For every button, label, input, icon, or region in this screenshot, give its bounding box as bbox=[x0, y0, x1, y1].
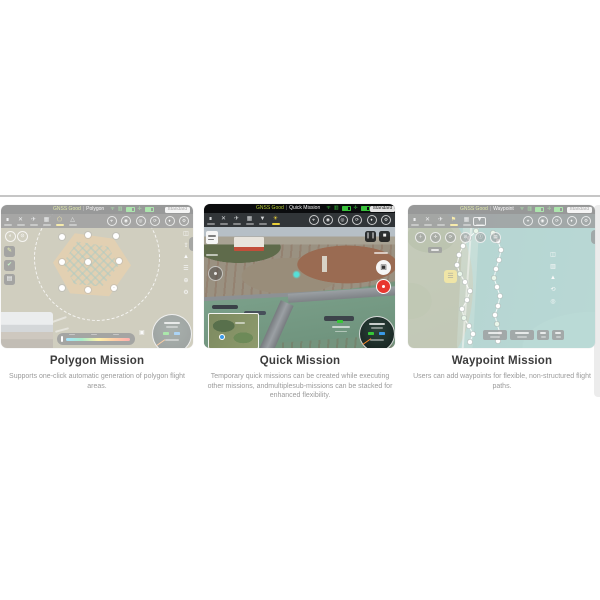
waypoint-marker bbox=[494, 321, 499, 326]
mission-name-text: Quick Mission bbox=[289, 204, 320, 213]
mic-icon: ♦ bbox=[367, 215, 377, 225]
target-icon: ⌖ bbox=[523, 216, 533, 226]
right-icon-strip: ◫ ▥ ▲ ⟲ ◎ bbox=[548, 251, 558, 305]
telemetry-compass bbox=[152, 314, 192, 348]
gnss-status-text: GNSS Good bbox=[53, 205, 81, 214]
add-waypoint-icon: ＋ bbox=[415, 232, 426, 243]
vertex-handle bbox=[113, 233, 119, 239]
app-status-bar: GNSS Good | Waypoint ᯤ ▥ ✛ Standard bbox=[408, 205, 595, 214]
waypoint-marker bbox=[497, 293, 502, 298]
app-status-bar: GNSS Good | Polygon ᯤ ▥ ✛ Standard bbox=[1, 205, 193, 214]
flight-mode-chip: Standard bbox=[370, 206, 395, 212]
status-icons: ᯤ ▥ ✛ bbox=[520, 205, 564, 214]
gnss-status-text: GNSS Good bbox=[460, 205, 488, 214]
waypoint-marker bbox=[467, 288, 472, 293]
folder-icon: ▤ bbox=[490, 232, 501, 243]
minimap-label bbox=[235, 322, 245, 324]
battery-percent-chip bbox=[337, 320, 343, 323]
route-tool-icon: ▼ bbox=[473, 217, 486, 226]
toolbar-right-icons: ⌖ ◉ ⟳ ♦ ⚙ bbox=[523, 216, 595, 226]
boat bbox=[212, 305, 238, 309]
stop-tool-icon: ✕ bbox=[421, 217, 434, 226]
page-canvas: - GNSS Good | Polygon ᯤ ▥ ✛ Standard ∎ ✕ bbox=[0, 0, 600, 600]
camera-icon: ◎ bbox=[136, 216, 146, 226]
minimap-drone-dot bbox=[219, 334, 225, 340]
mic-icon: ♦ bbox=[567, 216, 577, 226]
vertex-handle bbox=[85, 287, 91, 293]
waypoint-count-chip bbox=[537, 330, 549, 340]
delete-icon: ⊘ bbox=[460, 232, 471, 243]
carousel-card-polygon-mission[interactable]: - GNSS Good | Polygon ᯤ ▥ ✛ Standard ∎ ✕ bbox=[1, 205, 193, 348]
zoom-chip-text bbox=[208, 239, 214, 241]
mission-toolbar: ∎ ✕ ✈ ⚑ ▦ ▼ ⌖ ◉ ⟳ ♦ ⚙ bbox=[408, 214, 595, 228]
waypoint-marker bbox=[498, 247, 503, 252]
mission-toolbar: ∎ ✕ ✈ ▦ ⬠ △ ⌖ ◉ ◎ ⟳ ♦ ⚙ bbox=[1, 214, 193, 228]
flight-mode-chip: Standard bbox=[165, 207, 190, 213]
flight-mode-chip: Standard bbox=[567, 207, 592, 213]
battery2-icon bbox=[554, 207, 563, 213]
zoom-chip-text bbox=[208, 235, 216, 237]
waypoint-marker bbox=[470, 331, 475, 336]
polygon-tool-icon-active: ⬠ bbox=[53, 217, 66, 226]
terrain-tool-icon: △ bbox=[66, 217, 79, 226]
stop-tool-icon: ✕ bbox=[14, 217, 27, 226]
slider-tick-label bbox=[113, 334, 119, 335]
target-icon: ⌖ bbox=[107, 216, 117, 226]
heading-needle bbox=[363, 338, 372, 345]
toolbar-right-icons: ⌖ ◉ ◎ ⟳ ♦ ⚙ bbox=[309, 215, 396, 225]
hd-link-icon: ▥ bbox=[118, 205, 123, 214]
drone-tool-icon: ✈ bbox=[230, 216, 243, 225]
locate-arrow-icon: ▲ bbox=[550, 275, 556, 281]
telemetry-text bbox=[165, 339, 179, 341]
record-dot bbox=[382, 285, 385, 288]
tooltip-text bbox=[431, 249, 439, 251]
heading-needle bbox=[157, 339, 166, 346]
slider-tick-label bbox=[91, 334, 97, 335]
altitude-slider bbox=[57, 333, 135, 345]
drawer-handle bbox=[189, 237, 193, 251]
map-3d-icon: ▥ bbox=[550, 263, 556, 270]
photo-shutter-button: ▣ bbox=[376, 260, 391, 275]
waypoint-marker bbox=[495, 303, 500, 308]
gnss-satellite-icon: ✛ bbox=[547, 205, 551, 214]
separator: | bbox=[286, 204, 287, 213]
waypoint-marker bbox=[466, 323, 471, 328]
waypoint-marker bbox=[464, 297, 469, 302]
battery-icon bbox=[535, 207, 544, 213]
target-icon: ⌖ bbox=[309, 215, 319, 225]
carousel-card-quick-mission[interactable]: GNSS Good | Quick Mission ᯤ ▥ ✛ Standard… bbox=[204, 204, 395, 348]
settings-icon: ⚙ bbox=[381, 215, 391, 225]
polygon-mission-title: Polygon Mission bbox=[0, 355, 195, 367]
stop-mission-button: ■ bbox=[379, 231, 390, 242]
camera-params-text bbox=[374, 252, 388, 254]
edit-button: ✎ bbox=[4, 246, 15, 257]
frame-icon: ◫ bbox=[183, 230, 189, 237]
map-layer-button: ☰ bbox=[444, 270, 457, 283]
sync-icon: ⟳ bbox=[552, 216, 562, 226]
toolbar-right-icons: ⌖ ◉ ◎ ⟳ ♦ ⚙ bbox=[107, 216, 194, 226]
gnss-satellite-icon: ✛ bbox=[138, 205, 142, 214]
waypoint-marker bbox=[461, 315, 466, 320]
polygon-mission-description: Supports one-click automatic generation … bbox=[0, 372, 195, 391]
camera-icon: ◎ bbox=[338, 215, 348, 225]
quick-mission-icon-active: ☀ bbox=[269, 216, 282, 225]
rc-signal-icon: ᯤ bbox=[110, 205, 115, 214]
locate-button: ⊙ bbox=[17, 231, 28, 242]
zoom-in-icon: ⊕ bbox=[183, 277, 188, 284]
waypoint-marker bbox=[462, 279, 467, 284]
waypoint-marker bbox=[493, 266, 498, 271]
quick-mission-description: Temporary quick missions can be created … bbox=[202, 372, 398, 401]
pause-tool-icon: ∎ bbox=[408, 217, 421, 226]
stop-tool-icon: ✕ bbox=[217, 216, 230, 225]
waypoint-marker bbox=[456, 252, 461, 257]
app-status-bar: GNSS Good | Quick Mission ᯤ ▥ ✛ Standard bbox=[204, 204, 395, 213]
record-button bbox=[376, 279, 391, 294]
grid-tool-icon: ▦ bbox=[40, 217, 53, 226]
refresh-icon: ⟲ bbox=[550, 286, 555, 293]
camera-feed-thumbnail bbox=[1, 312, 53, 348]
telemetry-text bbox=[332, 326, 350, 328]
gimbal-dot bbox=[214, 272, 217, 275]
waypoint-marker bbox=[467, 339, 472, 344]
gnss-status-text: GNSS Good bbox=[256, 204, 284, 213]
mission-name-text: Polygon bbox=[86, 205, 104, 214]
quick-screenshot: GNSS Good | Quick Mission ᯤ ▥ ✛ Standard… bbox=[204, 204, 395, 348]
info-icon: ⓘ bbox=[475, 232, 486, 243]
camera-small-icon: ▣ bbox=[139, 329, 145, 336]
distance-stat-chip bbox=[483, 330, 507, 340]
hd-link-icon: ▥ bbox=[527, 205, 532, 214]
carousel-card-waypoint-mission[interactable]: GNSS Good | Waypoint ᯤ ▥ ✛ Standard ∎ ✕ … bbox=[408, 205, 595, 348]
mission-stats-bar bbox=[483, 330, 564, 340]
camera-view-icon: ▼ bbox=[256, 216, 269, 225]
shutter-icon: ◉ bbox=[538, 216, 548, 226]
telemetry-text bbox=[164, 322, 180, 324]
waypoint-marker bbox=[454, 262, 459, 267]
link-chip bbox=[174, 332, 180, 335]
crosshair-icon: ✛ bbox=[430, 232, 441, 243]
battery2-icon bbox=[145, 207, 154, 213]
vertex-handle-delete: - bbox=[111, 285, 117, 291]
telemetry-text bbox=[369, 323, 385, 325]
shutter-icon: ◉ bbox=[121, 216, 131, 226]
reverse-route-icon: ⟳ bbox=[445, 232, 456, 243]
waypoint-marker bbox=[459, 306, 464, 311]
waypoint-subtoolbar: ＋ ✛ ⟳ ⊘ ⓘ ▤ bbox=[415, 232, 501, 243]
separator: | bbox=[490, 205, 491, 214]
waypoint-tool-icon-active: ⚑ bbox=[447, 217, 460, 226]
telemetry-text bbox=[166, 326, 178, 328]
drawer-handle bbox=[591, 230, 595, 244]
mission-toolbar: ∎ ✕ ✈ ▦ ▼ ☀ ⌖ ◉ ◎ ⟳ ♦ ⚙ bbox=[204, 213, 395, 227]
library-button: ▤ bbox=[4, 274, 15, 285]
status-icons: ᯤ ▥ ✛ bbox=[326, 204, 370, 213]
hd-link-icon: ▥ bbox=[334, 204, 339, 213]
separator: | bbox=[83, 205, 84, 214]
drone-marker bbox=[292, 270, 301, 279]
battery2-icon bbox=[361, 206, 370, 212]
castle-building bbox=[234, 237, 264, 251]
waypoint-marker bbox=[491, 275, 496, 280]
telemetry-text bbox=[370, 339, 384, 341]
gnss-satellite-icon: ✛ bbox=[354, 204, 358, 213]
zoom-chip bbox=[206, 231, 218, 244]
drone-tool-icon: ✈ bbox=[434, 217, 447, 226]
upload-icon: ⇪ bbox=[183, 242, 188, 249]
compass-icon: ◎ bbox=[550, 298, 555, 305]
settings-icon: ⚙ bbox=[179, 216, 189, 226]
polygon-screenshot: - GNSS Good | Polygon ᯤ ▥ ✛ Standard ∎ ✕ bbox=[1, 205, 193, 348]
church-tower bbox=[322, 256, 327, 272]
pointer-icon: ▲ bbox=[183, 254, 189, 260]
quick-mission-title: Quick Mission bbox=[202, 355, 398, 367]
frame-icon: ◫ bbox=[550, 251, 556, 258]
speed-chip bbox=[552, 330, 564, 340]
subtoolbar-tooltip bbox=[428, 247, 442, 253]
slider-handle bbox=[61, 336, 63, 342]
waypoint-marker bbox=[457, 271, 462, 276]
rc-signal-icon: ᯤ bbox=[520, 205, 525, 214]
battery-icon bbox=[126, 207, 135, 213]
waypoint-mission-title: Waypoint Mission bbox=[404, 355, 600, 367]
battery-chip bbox=[368, 332, 374, 335]
mic-icon: ♦ bbox=[165, 216, 175, 226]
battery-icon bbox=[342, 206, 351, 212]
shutter-icon: ◉ bbox=[323, 215, 333, 225]
vertex-handle bbox=[59, 285, 65, 291]
map-mode-button: ◐ bbox=[5, 231, 16, 242]
duration-stat-chip bbox=[510, 330, 534, 340]
layers-icon: ☰ bbox=[183, 265, 188, 272]
gimbal-dial bbox=[208, 266, 223, 281]
waypoint-marker bbox=[492, 312, 497, 317]
minimap bbox=[208, 313, 259, 348]
slider-tick-label bbox=[69, 334, 75, 335]
telemetry-text bbox=[371, 327, 383, 329]
save-button: ✔ bbox=[4, 260, 15, 271]
pause-tool-icon: ∎ bbox=[1, 217, 14, 226]
telemetry-compass bbox=[359, 316, 395, 348]
waypoint-mission-description: Users can add waypoints for flexible, no… bbox=[404, 372, 600, 391]
slider-gradient bbox=[66, 338, 130, 341]
vertex-handle bbox=[85, 259, 91, 265]
resolution-label bbox=[206, 254, 218, 256]
grid-tool-icon: ▦ bbox=[243, 216, 256, 225]
link-chip bbox=[379, 332, 385, 335]
waypoint-screenshot: GNSS Good | Waypoint ᯤ ▥ ✛ Standard ∎ ✕ … bbox=[408, 205, 595, 348]
battery-chip bbox=[163, 332, 169, 335]
waypoint-marker bbox=[496, 257, 501, 262]
sync-icon: ⟳ bbox=[150, 216, 160, 226]
vertex-handle bbox=[85, 232, 91, 238]
pause-tool-icon: ∎ bbox=[204, 216, 217, 225]
pause-mission-button: ❙❙ bbox=[365, 231, 376, 242]
vertex-handle bbox=[59, 234, 65, 240]
waypoint-marker bbox=[460, 243, 465, 248]
rc-signal-icon: ᯤ bbox=[326, 204, 331, 213]
mission-name-text: Waypoint bbox=[493, 205, 514, 214]
status-icons: ᯤ ▥ ✛ bbox=[110, 205, 154, 214]
vertex-handle bbox=[59, 259, 65, 265]
gear-icon: ⚙ bbox=[183, 289, 188, 296]
vertex-handle bbox=[116, 258, 122, 264]
section-divider bbox=[0, 195, 600, 197]
waypoint-marker bbox=[494, 284, 499, 289]
sync-icon: ⟳ bbox=[352, 215, 362, 225]
grid-tool-icon: ▦ bbox=[460, 217, 473, 226]
settings-icon: ⚙ bbox=[581, 216, 591, 226]
drone-tool-icon: ✈ bbox=[27, 217, 40, 226]
